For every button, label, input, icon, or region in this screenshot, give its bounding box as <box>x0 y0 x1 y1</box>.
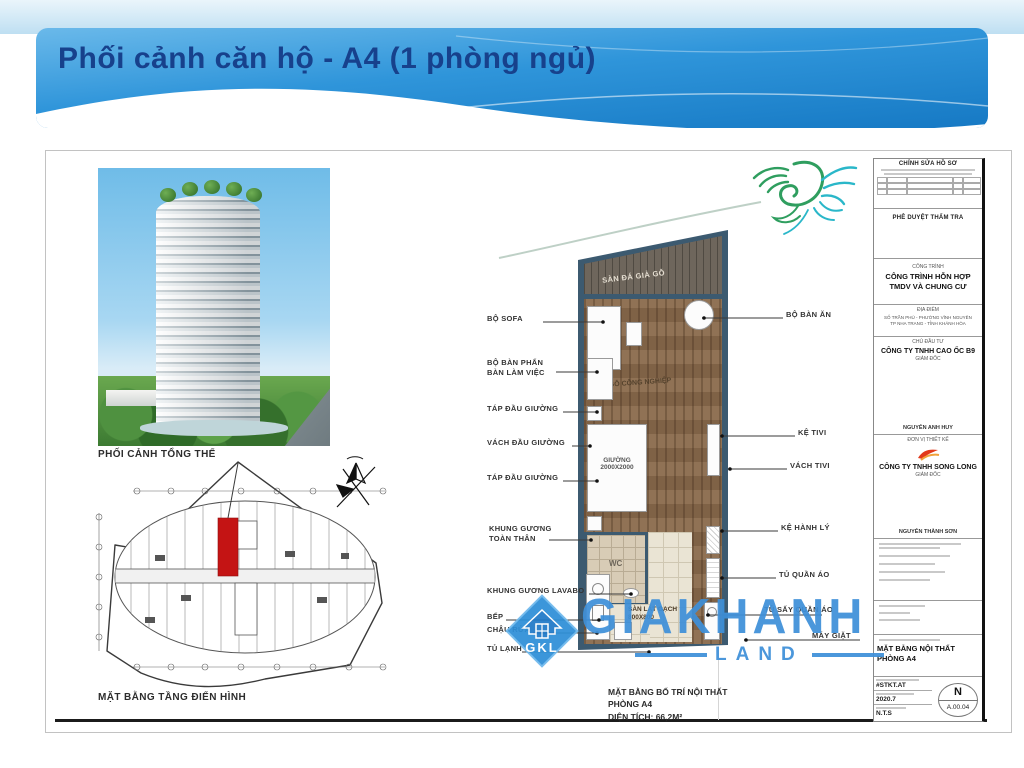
tower-podium <box>140 420 288 436</box>
label-full-mirror: KHUNG GƯƠNG TOÀN THÂN <box>489 524 552 544</box>
designer-name: CÔNG TY TNHH SONG LONG <box>877 463 979 472</box>
watermark-brand-text: GIAKHANH <box>581 587 866 645</box>
label-tv-shelf: KỆ TIVI <box>798 428 826 438</box>
location-section: ĐỊA ĐIỂM SỐ TRẦN PHÚ - PHƯỜNG VĨNH NGUYÊ… <box>874 305 982 337</box>
designer-signer: NGUYỄN THÀNH SƠN <box>874 529 982 535</box>
north-arrow-icon <box>337 457 375 507</box>
phoenix-ornament-logo <box>742 150 860 238</box>
sheet-code-1: #STKT.AT <box>876 682 930 689</box>
label-wardrobe: TỦ QUẦN ÁO <box>779 570 830 580</box>
investor-section: CHỦ ĐẦU TƯ CÔNG TY TNHH CAO ỐC B9 GIÁM Đ… <box>874 337 982 435</box>
nightstand <box>587 406 602 421</box>
investor-role: GIÁM ĐỐC <box>877 356 979 364</box>
tower-building <box>156 196 260 434</box>
giakhanh-watermark: GKL GIAKHANH LAND <box>505 592 965 676</box>
svg-text:GKL: GKL <box>525 640 558 655</box>
bed-label: GIƯỜNG 2000X2000 <box>588 457 646 471</box>
label-tv-wall: VÁCH TIVI <box>790 461 830 471</box>
investor-signer: NGUYỄN ANH HUY <box>874 425 982 431</box>
approval-header: PHÊ DUYỆT THẨM TRA <box>877 215 979 221</box>
building-render-image <box>98 168 330 446</box>
revision-header: CHỈNH SỬA HỒ SƠ <box>877 161 979 167</box>
watermark-sub-text: LAND <box>715 644 804 666</box>
nightstand <box>587 516 602 531</box>
typical-floor-caption: MẶT BẰNG TẦNG ĐIỂN HÌNH <box>98 692 246 703</box>
revision-table <box>877 177 979 195</box>
label-luggage-shelf: KỆ HÀNH LÝ <box>781 523 830 533</box>
page-title: Phối cảnh căn hộ - A4 (1 phòng ngủ) <box>58 42 596 76</box>
location-value: SỐ TRẦN PHÚ - PHƯỜNG VĨNH NGUYÊN TP NHA … <box>877 315 979 329</box>
sheet-code-2: 2020.7 <box>876 696 930 703</box>
roof-tree <box>246 188 262 202</box>
label-dining-set: BỘ BÀN ĂN <box>786 310 831 320</box>
sheet-scale: N.T.S <box>876 710 930 717</box>
label-headboard-wall: VÁCH ĐẦU GIƯỜNG <box>487 438 565 448</box>
vanity-desk <box>587 358 613 400</box>
bed: GIƯỜNG 2000X2000 <box>587 424 647 512</box>
tv-console <box>707 424 720 476</box>
designer-role: GIÁM ĐỐC <box>877 472 979 480</box>
revision-section: CHỈNH SỬA HỒ SƠ <box>874 159 982 209</box>
balcony-wall <box>584 294 722 299</box>
label-vanity: BỘ BÀN PHẤN BÀN LÀM VIỆC <box>487 358 545 378</box>
project-label: CÔNG TRÌNH <box>877 264 979 272</box>
roof-tree <box>204 180 220 194</box>
revision-note-line <box>884 173 972 175</box>
wc-label: WC <box>609 559 622 568</box>
highlighted-unit-a4 <box>218 518 238 576</box>
typical-floor-plan <box>85 455 400 695</box>
investor-name: CÔNG TY TNHH CAO ỐC B9 <box>877 347 979 356</box>
label-kitchen: BẾP <box>487 612 503 622</box>
roof-tree <box>160 188 176 202</box>
roof-tree <box>226 182 242 196</box>
song-long-logo-icon <box>915 446 941 462</box>
watermark-dash <box>635 653 707 657</box>
coffee-table <box>626 322 642 346</box>
dining-table <box>684 300 714 330</box>
location-label: ĐỊA ĐIỂM <box>877 307 979 315</box>
compass-north-letter: N <box>939 684 977 700</box>
watermark-dash <box>812 653 884 657</box>
approval-section: PHÊ DUYỆT THẨM TRA <box>874 209 982 259</box>
luggage-shelf <box>706 526 720 554</box>
roof-tree <box>182 182 198 196</box>
label-nightstand-2: TÁP ĐẦU GIƯỜNG <box>487 473 558 483</box>
project-section: CÔNG TRÌNH CÔNG TRÌNH HỖN HỢP TMDV VÀ CH… <box>874 259 982 305</box>
sheet-border-bottom <box>55 719 987 722</box>
project-name: CÔNG TRÌNH HỖN HỢP TMDV VÀ CHUNG CƯ <box>877 272 979 292</box>
label-nightstand-1: TÁP ĐẦU GIƯỜNG <box>487 404 558 414</box>
revision-note-line <box>881 169 975 171</box>
designer-section: ĐƠN VỊ THIẾT KẾ CÔNG TY TNHH SONG LONG G… <box>874 435 982 539</box>
sheet-info-section: #STKT.AT 2020.7 N.T.S N A.00.04 <box>874 677 982 721</box>
gkl-logo-icon: GKL <box>505 594 579 668</box>
north-compass: N A.00.04 <box>938 683 978 717</box>
designer-label: ĐƠN VỊ THIẾT KẾ <box>877 437 979 445</box>
watermark-land-row: LAND <box>635 644 884 666</box>
unit-interior: SÀN ĐÁ GIẢ GỖ SÀN GỖ CÔNG NGHIỆP GIƯỜNG … <box>584 234 722 644</box>
investor-label: CHỦ ĐẦU TƯ <box>877 339 979 347</box>
sheet-number: A.00.04 <box>939 701 977 714</box>
unit-plan-caption: MẶT BẰNG BỐ TRÍ NỘI THẤT PHÒNG A4 DIỆN T… <box>608 686 727 723</box>
label-sofa: BỘ SOFA <box>487 314 523 324</box>
header-banner: Phối cảnh căn hộ - A4 (1 phòng ngủ) <box>36 28 988 128</box>
